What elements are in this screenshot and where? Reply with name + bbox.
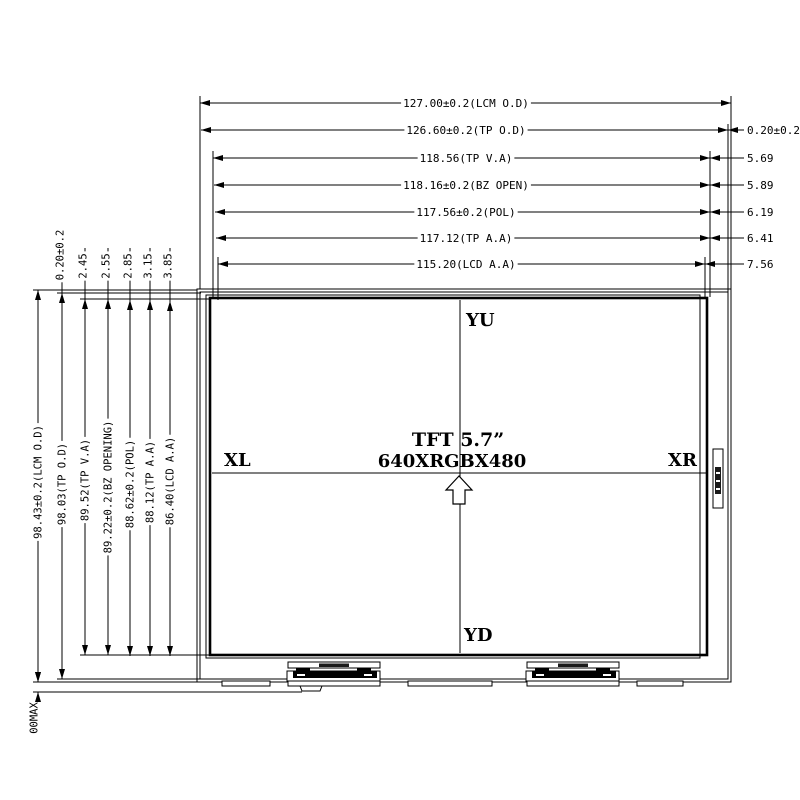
left-dim-tp-od: 98.03(TP O.D): [57, 443, 69, 525]
offset-label-641: 6.41: [747, 232, 774, 245]
bottom-max-label: 00MAX: [29, 702, 41, 734]
right-connector-mark: [716, 488, 720, 490]
right-connector-mark: [716, 472, 720, 474]
dim-label-bz-open: 118.16±0.2(BZ OPEN): [403, 179, 529, 192]
display-resolution-label: 640XRGBX480: [378, 451, 527, 472]
right-edge-connector: [713, 449, 723, 508]
dim-label-tp-od: 126.60±0.2(TP O.D): [406, 124, 525, 137]
bottom-connector-1: [287, 662, 380, 681]
lcd-module-outline-drawing: 127.00±0.2(LCM O.D) 126.60±0.2(TP O.D) 1…: [0, 0, 800, 800]
left-dim-lcd-aa: 86.40(LCD A.A): [165, 437, 177, 526]
top-offset-020: 0.20±0.2: [55, 230, 67, 281]
offset-label-619: 6.19: [747, 206, 774, 219]
pin-label-xr: XR: [668, 450, 698, 471]
dim-label-pol: 117.56±0.2(POL): [416, 206, 515, 219]
connector1-contact: [364, 674, 372, 676]
pin-label-yd: YD: [463, 625, 492, 646]
bottom-tab: [222, 681, 270, 686]
left-dim-tp-va: 89.52(TP V.A): [80, 439, 92, 521]
dim-label-lcm-od: 127.00±0.2(LCM O.D): [403, 97, 529, 110]
connector1-label-marking: [319, 664, 349, 668]
connector2-cap-left: [535, 669, 549, 672]
top-offset-385: 3.85: [163, 253, 175, 278]
connector2-cap-right: [596, 669, 610, 672]
pol-outline: [206, 295, 700, 658]
labels: 127.00±0.2(LCM O.D) 126.60±0.2(TP O.D) 1…: [29, 96, 800, 734]
connector1-cap-right: [357, 669, 371, 672]
orientation-up-arrow-icon: [446, 476, 472, 504]
bottom-tab: [637, 681, 683, 686]
top-offset-255: 2.55: [101, 253, 113, 278]
right-connector-mark: [716, 480, 720, 482]
offset-label-756: 7.56: [747, 258, 774, 271]
dim-label-lcd-aa: 115.20(LCD A.A): [416, 258, 515, 271]
offset-label-589: 5.89: [747, 179, 774, 192]
connector1-contact: [297, 674, 305, 676]
right-offset-stubs: [705, 130, 744, 264]
connector2-contact: [536, 674, 544, 676]
bottom-tab: [288, 681, 380, 686]
dim-label-tp-aa: 117.12(TP A.A): [420, 232, 513, 245]
bottom-edge-features: [222, 681, 683, 691]
top-offset-315: 3.15: [143, 253, 155, 278]
bottom-connector-2: [526, 662, 619, 681]
dim-label-tp-va: 118.56(TP V.A): [420, 152, 513, 165]
bottom-tab: [408, 681, 492, 686]
bottom-tab: [527, 681, 619, 686]
connector2-contact: [603, 674, 611, 676]
connector1-cap-left: [296, 669, 310, 672]
offset-label-569: 5.69: [747, 152, 774, 165]
pin-label-yu: YU: [465, 310, 495, 331]
pin-label-xl: XL: [224, 450, 251, 471]
left-dim-pol: 88.62±0.2(POL): [125, 440, 137, 529]
left-dim-bz-opening: 89.22±0.2(BZ OPENING): [103, 421, 115, 554]
connector2-label-marking: [558, 664, 588, 668]
left-dim-tp-aa: 88.12(TP A.A): [145, 441, 157, 523]
display-size-label: TFT 5.7”: [412, 429, 504, 451]
offset-label-020: 0.20±0.2: [747, 124, 800, 137]
top-offset-285: 2.85: [123, 253, 135, 278]
drawing-canvas: 127.00±0.2(LCM O.D) 126.60±0.2(TP O.D) 1…: [0, 0, 800, 800]
bottom-notch: [300, 686, 322, 691]
top-offset-245: 2.45: [78, 253, 90, 278]
left-dim-lcm-od: 98.43±0.2(LCM O.D): [33, 425, 45, 539]
